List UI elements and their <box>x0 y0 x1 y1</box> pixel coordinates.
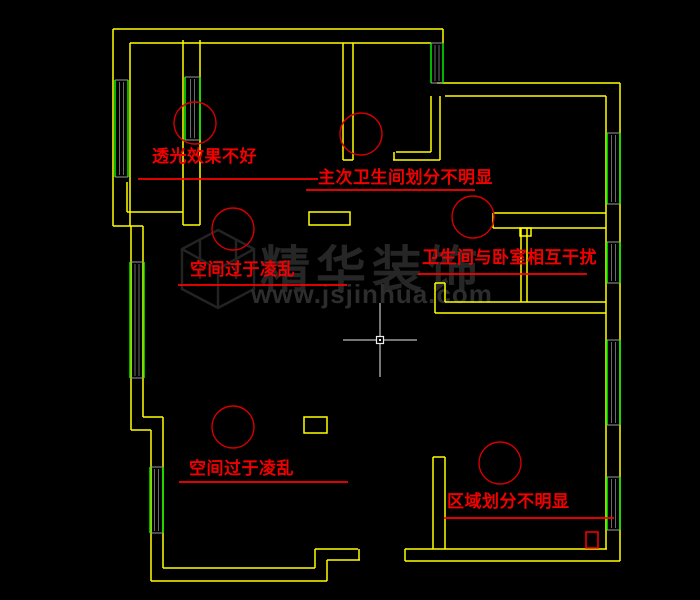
annotation-labels: 透光效果不好 主次卫生间划分不明显 空间过于凌乱 卫生间与卧室相互干扰 空间过于… <box>0 0 700 600</box>
annotation-label: 区域划分不明显 <box>447 492 570 511</box>
cad-canvas[interactable]: 精华装饰 www.jsjinhua.com 透光效果不好 主次卫生间划分不明显 … <box>0 0 700 600</box>
annotation-label: 卫生间与卧室相互干扰 <box>422 248 597 267</box>
annotation-label: 主次卫生间划分不明显 <box>318 168 493 187</box>
annotation-label: 透光效果不好 <box>152 147 257 166</box>
annotation-label: 空间过于凌乱 <box>190 260 295 279</box>
annotation-label: 空间过于凌乱 <box>189 459 294 478</box>
